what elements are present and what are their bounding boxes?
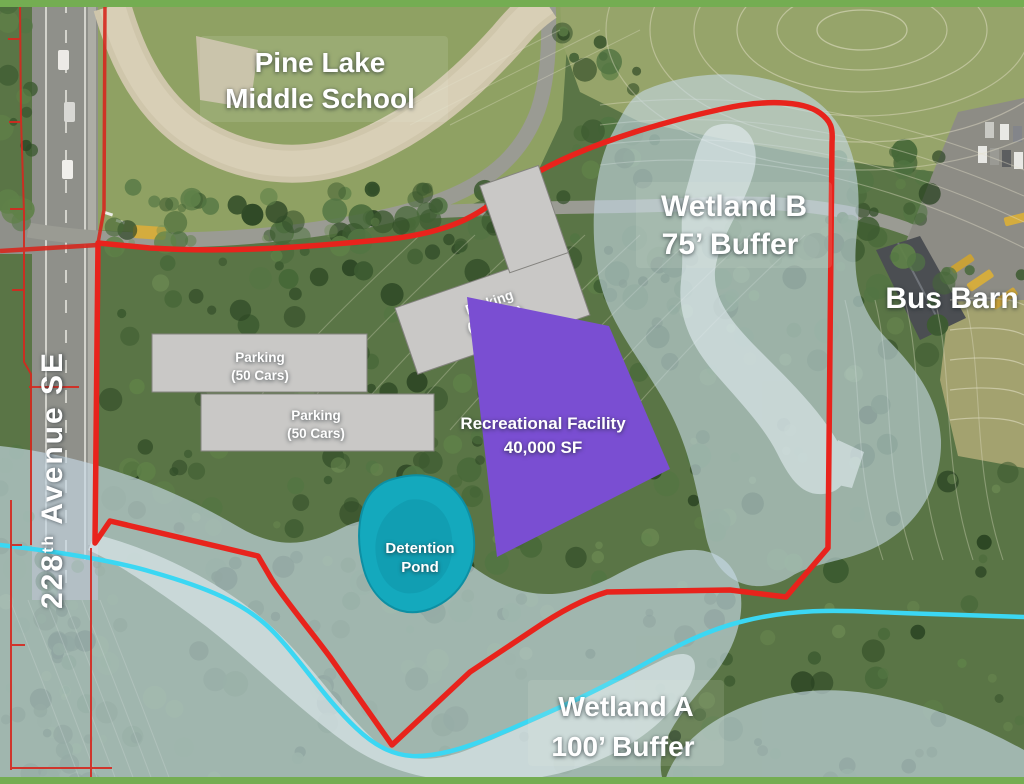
parking-upper-label-line2: (50 Cars) <box>231 368 289 383</box>
facility-label-line2: 40,000 SF <box>504 438 582 457</box>
street-ordinal-suffix: th <box>40 534 57 553</box>
detention-pond-label-line1: Detention <box>385 540 454 557</box>
street-name-label: 228th Avenue SE <box>36 351 69 609</box>
school-label-line1: Pine Lake <box>255 47 386 78</box>
parking-lower-label-line1: Parking <box>291 408 341 423</box>
parking-lower-label-line2: (50 Cars) <box>287 426 345 441</box>
bus-barn-label: Bus Barn <box>885 282 1018 315</box>
wetland-a-label-line1: Wetland A <box>558 691 693 722</box>
wetland-b-label-line2: 75’ Buffer <box>662 228 799 261</box>
facility-label-line1: Recreational Facility <box>460 414 626 433</box>
top-border-strip <box>0 0 1024 7</box>
wetland-a-label-line2: 100’ Buffer <box>551 731 694 762</box>
detention-pond-label-line2: Pond <box>401 559 439 576</box>
street-number: 228 <box>36 553 69 609</box>
parking-upper-label-line1: Parking <box>235 350 285 365</box>
street-rest: Avenue SE <box>36 351 69 534</box>
school-label-line2: Middle School <box>225 83 415 114</box>
bottom-border-strip <box>0 777 1024 784</box>
aerial-site-plan-map: Parking (50 Cars) Parking (50 Cars) Park… <box>0 0 1024 784</box>
wetland-b-label-line1: Wetland B <box>661 190 807 223</box>
map-canvas: Parking (50 Cars) Parking (50 Cars) Park… <box>0 0 1024 784</box>
